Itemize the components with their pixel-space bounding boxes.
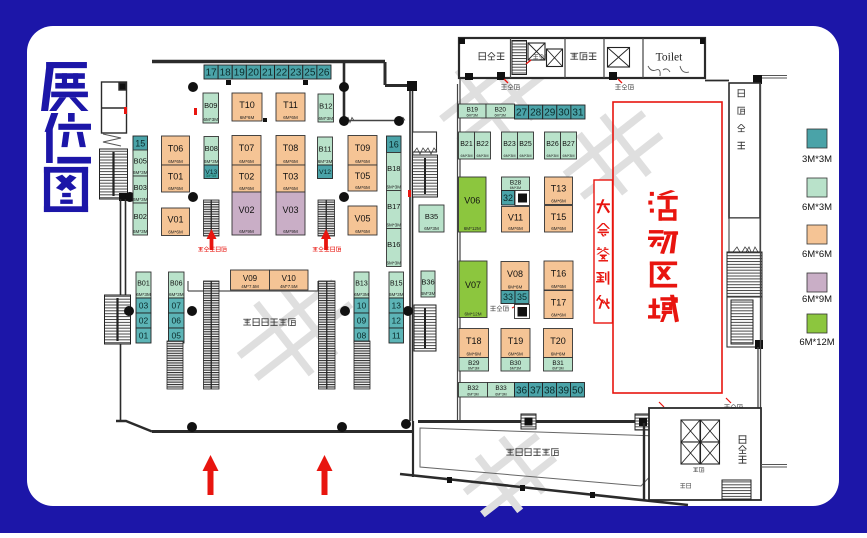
svg-text:6M*3M: 6M*3M: [510, 367, 521, 371]
svg-text:6M*3M: 6M*3M: [386, 184, 401, 189]
svg-text:6M*3M: 6M*3M: [169, 292, 184, 297]
svg-text:23: 23: [290, 68, 302, 79]
svg-text:6M*6M: 6M*6M: [283, 115, 298, 120]
svg-text:B19: B19: [467, 107, 479, 114]
svg-text:6M*3M: 6M*3M: [460, 154, 472, 158]
svg-text:6M*3M: 6M*3M: [203, 117, 218, 122]
svg-text:6M*3M: 6M*3M: [510, 186, 521, 190]
svg-text:6M*3M: 6M*3M: [467, 393, 478, 397]
svg-text:T09: T09: [355, 143, 371, 153]
svg-text:6M*3M: 6M*3M: [467, 114, 478, 118]
svg-text:6M*6M: 6M*6M: [508, 284, 523, 289]
svg-text:B27: B27: [562, 141, 575, 148]
svg-text:V05: V05: [354, 213, 370, 223]
svg-text:T16: T16: [551, 268, 567, 278]
svg-text:B16: B16: [387, 240, 400, 249]
svg-text:6M*6M: 6M*6M: [551, 198, 566, 203]
svg-text:11: 11: [392, 331, 401, 341]
svg-text:38: 38: [544, 385, 556, 396]
svg-text:6M*9M: 6M*9M: [283, 229, 298, 234]
svg-text:B13: B13: [355, 280, 368, 287]
svg-text:V01: V01: [167, 215, 183, 225]
svg-text:B35: B35: [425, 212, 438, 221]
svg-text:29: 29: [544, 108, 556, 119]
svg-text:12: 12: [392, 316, 402, 326]
svg-text:6M*3M: 6M*3M: [386, 222, 401, 227]
svg-text:T10: T10: [239, 100, 255, 110]
svg-text:6M*6M: 6M*6M: [551, 226, 566, 231]
svg-text:6M*3M: 6M*3M: [389, 292, 404, 297]
svg-text:6M*3M: 6M*3M: [133, 197, 148, 202]
svg-text:32: 32: [503, 193, 513, 203]
svg-text:19: 19: [234, 68, 246, 79]
svg-text:B15: B15: [390, 280, 403, 287]
svg-text:6M*3M: 6M*3M: [424, 226, 439, 231]
svg-text:B22: B22: [476, 141, 489, 148]
svg-text:33: 33: [503, 292, 513, 302]
svg-text:6M*6M: 6M*6M: [355, 229, 370, 234]
svg-text:B03: B03: [134, 183, 147, 192]
svg-text:V06: V06: [464, 195, 480, 205]
svg-text:6M*6M: 6M*6M: [551, 351, 566, 356]
svg-text:V02: V02: [238, 205, 254, 215]
svg-text:36: 36: [516, 385, 528, 396]
svg-text:6M*3M: 6M*3M: [318, 159, 333, 164]
svg-text:02: 02: [139, 316, 149, 326]
svg-text:B17: B17: [387, 202, 400, 211]
svg-text:6M*3M: 6M*3M: [802, 202, 832, 213]
svg-text:35: 35: [517, 292, 527, 302]
svg-text:T03: T03: [283, 171, 299, 181]
svg-text:B09: B09: [204, 101, 217, 110]
svg-text:6M*6M: 6M*6M: [551, 284, 566, 289]
svg-text:B08: B08: [205, 144, 218, 153]
svg-text:6M*3M: 6M*3M: [476, 154, 488, 158]
svg-text:05: 05: [172, 331, 182, 341]
svg-text:6M*6M: 6M*6M: [239, 159, 254, 164]
svg-text:T01: T01: [168, 171, 184, 181]
svg-text:6M*3M: 6M*3M: [495, 114, 506, 118]
svg-text:21: 21: [262, 68, 274, 79]
svg-text:4M*7.5M: 4M*7.5M: [280, 284, 298, 289]
svg-text:6M*6M: 6M*6M: [508, 226, 523, 231]
svg-text:30: 30: [558, 108, 570, 119]
svg-text:T18: T18: [466, 336, 482, 346]
svg-text:6M*6M: 6M*6M: [802, 249, 832, 260]
svg-text:V08: V08: [507, 269, 523, 279]
svg-text:31: 31: [572, 108, 584, 119]
svg-text:B06: B06: [170, 280, 183, 287]
svg-text:6M*6M: 6M*6M: [168, 229, 183, 234]
svg-text:T07: T07: [239, 143, 255, 153]
svg-text:4M*7.5M: 4M*7.5M: [241, 284, 259, 289]
svg-text:37: 37: [530, 385, 542, 396]
svg-text:03: 03: [139, 301, 149, 311]
svg-text:6M*6M: 6M*6M: [355, 185, 370, 190]
svg-text:6M*3M: 6M*3M: [562, 154, 574, 158]
svg-text:6M*6M: 6M*6M: [466, 351, 481, 356]
svg-text:T02: T02: [239, 171, 255, 181]
svg-text:Toilet: Toilet: [656, 52, 683, 64]
svg-text:V10: V10: [282, 274, 297, 283]
svg-text:39: 39: [558, 385, 570, 396]
svg-text:6M*3M: 6M*3M: [468, 367, 479, 371]
svg-text:B25: B25: [519, 141, 532, 148]
svg-text:6M*3M: 6M*3M: [495, 393, 506, 397]
svg-text:B18: B18: [387, 164, 400, 173]
svg-text:6M*3M: 6M*3M: [552, 367, 563, 371]
svg-text:B21: B21: [460, 141, 473, 148]
svg-text:10: 10: [357, 301, 367, 311]
svg-text:6M*3M: 6M*3M: [354, 292, 369, 297]
svg-text:27: 27: [516, 108, 528, 119]
svg-text:22: 22: [276, 68, 288, 79]
svg-text:07: 07: [172, 301, 182, 311]
svg-text:08: 08: [357, 331, 367, 341]
svg-text:B26: B26: [546, 141, 559, 148]
svg-text:T17: T17: [551, 297, 567, 307]
svg-text:6M*3M: 6M*3M: [204, 159, 219, 164]
svg-text:15: 15: [135, 139, 145, 149]
svg-text:6M*6M: 6M*6M: [168, 159, 183, 164]
svg-text:3M*3M: 3M*3M: [802, 154, 832, 165]
svg-text:V07: V07: [465, 280, 481, 290]
svg-text:09: 09: [357, 316, 367, 326]
svg-text:6M*9M: 6M*9M: [802, 294, 832, 305]
svg-text:6M*3M: 6M*3M: [421, 291, 436, 296]
svg-text:6M*6M: 6M*6M: [239, 186, 254, 191]
svg-text:6M*6M: 6M*6M: [283, 186, 298, 191]
svg-text:6M*3M: 6M*3M: [133, 229, 148, 234]
svg-text:18: 18: [220, 68, 232, 79]
svg-text:T15: T15: [551, 212, 567, 222]
svg-text:B20: B20: [495, 107, 507, 114]
svg-text:26: 26: [318, 68, 330, 79]
svg-text:V12: V12: [319, 169, 331, 176]
svg-text:B32: B32: [467, 385, 479, 392]
svg-text:6M*6M: 6M*6M: [551, 312, 566, 317]
svg-text:6M*3M: 6M*3M: [546, 154, 558, 158]
svg-text:6M*6M: 6M*6M: [508, 351, 523, 356]
svg-text:6M*3M: 6M*3M: [318, 116, 333, 121]
svg-text:01: 01: [139, 331, 149, 341]
svg-text:B12: B12: [319, 101, 332, 110]
svg-text:6M*6M: 6M*6M: [355, 159, 370, 164]
svg-text:B36: B36: [421, 278, 434, 287]
svg-text:V11: V11: [508, 212, 523, 222]
svg-text:V03: V03: [282, 205, 298, 215]
svg-text:6M*3M: 6M*3M: [133, 170, 148, 175]
svg-text:6M*12M: 6M*12M: [799, 337, 834, 348]
svg-text:B01: B01: [137, 280, 150, 287]
svg-text:B05: B05: [134, 157, 147, 166]
svg-text:06: 06: [172, 316, 182, 326]
svg-text:6M*6M: 6M*6M: [283, 159, 298, 164]
svg-text:T20: T20: [550, 336, 566, 346]
svg-text:3M*3M: 3M*3M: [206, 174, 217, 178]
svg-text:6M*6M: 6M*6M: [240, 115, 255, 120]
svg-text:50: 50: [572, 385, 584, 396]
svg-text:T11: T11: [283, 100, 298, 110]
svg-text:V09: V09: [243, 274, 258, 283]
svg-text:28: 28: [530, 108, 542, 119]
svg-text:6M*3M: 6M*3M: [503, 154, 515, 158]
svg-text:6M*3M: 6M*3M: [386, 260, 401, 265]
svg-text:T06: T06: [168, 143, 184, 153]
svg-text:13: 13: [392, 301, 402, 311]
svg-text:6M*12M: 6M*12M: [464, 226, 481, 231]
svg-text:T19: T19: [508, 336, 524, 346]
svg-text:6M*6M: 6M*6M: [168, 186, 183, 191]
svg-text:6M*12M: 6M*12M: [464, 311, 481, 316]
svg-text:16: 16: [389, 139, 399, 149]
svg-text:20: 20: [248, 68, 260, 79]
svg-text:B33: B33: [495, 385, 507, 392]
svg-text:17: 17: [205, 68, 217, 79]
svg-text:B02: B02: [134, 212, 147, 221]
svg-text:6M*3M: 6M*3M: [136, 292, 151, 297]
svg-text:T13: T13: [551, 184, 567, 194]
svg-text:B23: B23: [503, 141, 516, 148]
svg-text:B11: B11: [319, 144, 332, 153]
svg-text:6M*3M: 6M*3M: [519, 154, 531, 158]
svg-text:T08: T08: [283, 143, 299, 153]
svg-text:25: 25: [304, 68, 316, 79]
svg-text:6M*9M: 6M*9M: [239, 229, 254, 234]
svg-text:T05: T05: [355, 171, 371, 181]
